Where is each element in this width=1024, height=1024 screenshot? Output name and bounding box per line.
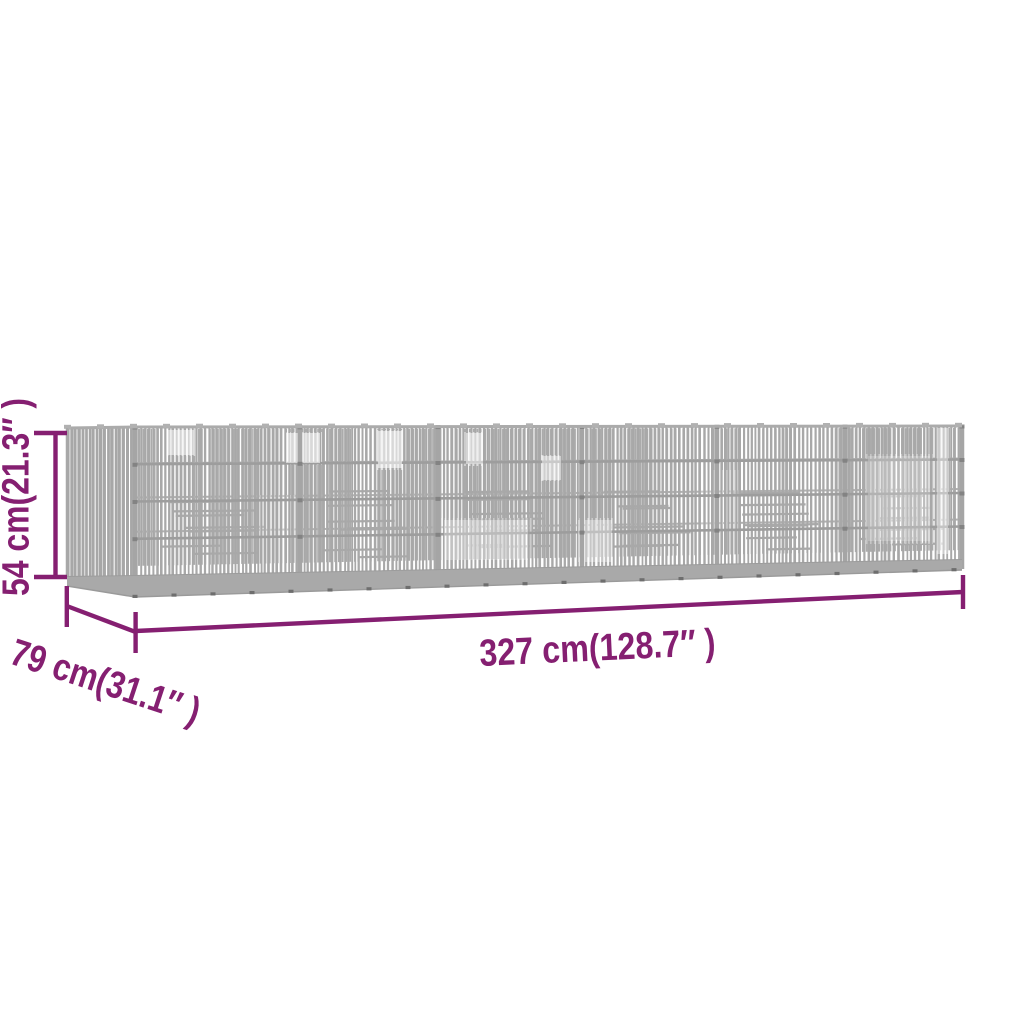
svg-text:54 cm(21.3″ ): 54 cm(21.3″ )	[0, 398, 37, 596]
